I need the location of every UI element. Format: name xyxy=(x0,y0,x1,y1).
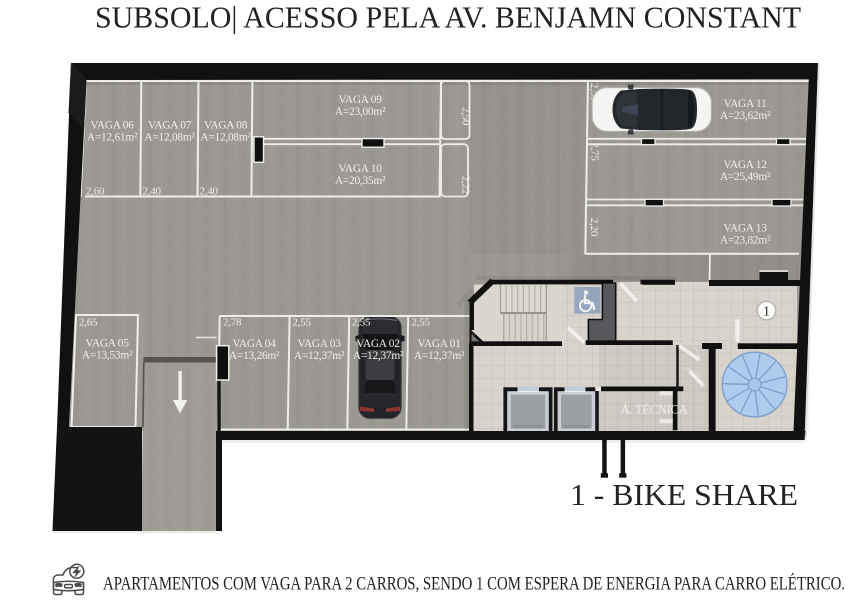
svg-text:A=23,82m²: A=23,82m² xyxy=(720,235,771,247)
svg-text:2,55: 2,55 xyxy=(412,317,431,329)
svg-text:1 - BIKE SHARE: 1 - BIKE SHARE xyxy=(570,477,798,512)
svg-text:VAGA 03: VAGA 03 xyxy=(297,338,341,350)
svg-text:VAGA 09: VAGA 09 xyxy=(338,94,382,106)
svg-text:2,55: 2,55 xyxy=(293,317,312,329)
svg-text:VAGA 12: VAGA 12 xyxy=(723,159,767,171)
svg-text:A=20,35m²: A=20,35m² xyxy=(335,175,386,187)
svg-text:2,20: 2,20 xyxy=(588,218,600,237)
svg-text:A=12,61m²: A=12,61m² xyxy=(87,131,138,143)
svg-text:A=25,49m²: A=25,49m² xyxy=(720,171,771,183)
svg-text:2,78: 2,78 xyxy=(223,317,242,329)
svg-text:1: 1 xyxy=(763,303,770,318)
svg-text:2,22: 2,22 xyxy=(460,176,472,194)
svg-text:SUBSOLO| ACESSO PELA AV. BENJA: SUBSOLO| ACESSO PELA AV. BENJAMN CONSTAN… xyxy=(95,1,801,35)
svg-text:A=12,08m²: A=12,08m² xyxy=(144,131,195,143)
svg-text:A=12,08m²: A=12,08m² xyxy=(200,131,251,143)
svg-text:Á. TÉCNICA: Á. TÉCNICA xyxy=(621,403,688,417)
svg-text:2,55: 2,55 xyxy=(352,317,371,329)
svg-text:A=12,37m²: A=12,37m² xyxy=(353,350,404,362)
svg-text:VAGA 07: VAGA 07 xyxy=(148,119,192,131)
svg-text:VAGA 11: VAGA 11 xyxy=(724,98,767,110)
svg-text:A=12,37m²: A=12,37m² xyxy=(294,350,345,362)
svg-text:A=23,00m²: A=23,00m² xyxy=(335,106,386,118)
svg-text:VAGA 05: VAGA 05 xyxy=(85,338,129,350)
svg-text:A=23,62m²: A=23,62m² xyxy=(720,110,771,122)
svg-text:VAGA 02: VAGA 02 xyxy=(356,338,400,350)
svg-text:A=13,53m²: A=13,53m² xyxy=(82,350,133,362)
svg-text:VAGA 10: VAGA 10 xyxy=(338,163,382,175)
svg-text:2,50: 2,50 xyxy=(460,107,472,126)
svg-text:2,75: 2,75 xyxy=(589,142,601,161)
svg-text:A=13,26m²: A=13,26m² xyxy=(229,350,280,362)
svg-text:VAGA 04: VAGA 04 xyxy=(232,338,276,350)
svg-text:VAGA 06: VAGA 06 xyxy=(90,119,134,131)
svg-text:VAGA 13: VAGA 13 xyxy=(723,223,767,235)
svg-text:APARTAMENTOS COM VAGA PARA 2 C: APARTAMENTOS COM VAGA PARA 2 CARROS, SEN… xyxy=(103,573,845,595)
svg-text:VAGA 08: VAGA 08 xyxy=(204,119,248,131)
svg-text:A=12,37m²: A=12,37m² xyxy=(414,350,465,362)
svg-text:VAGA 01: VAGA 01 xyxy=(417,338,461,350)
svg-text:2,65: 2,65 xyxy=(79,317,98,329)
